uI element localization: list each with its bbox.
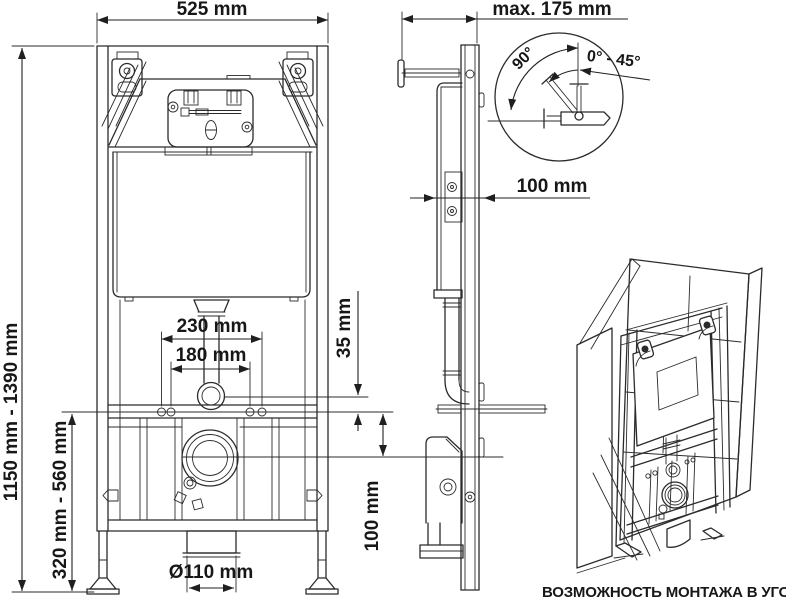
swivel-bracket <box>542 74 610 128</box>
installation-frame-diagram: 90° 0° - 45° <box>0 0 786 599</box>
cistern-tank <box>102 62 323 301</box>
dim-width-525: 525 mm <box>97 0 328 43</box>
dim-lower-320-560: 320 mm - 560 mm <box>50 414 72 591</box>
wall-gap-100-label: 100 mm <box>517 176 588 197</box>
drain-100-label: 100 mm <box>362 481 383 552</box>
frame-struts <box>140 418 279 520</box>
side-view <box>398 45 547 590</box>
side-rail <box>461 45 484 590</box>
corner-mount-caption: ВОЗМОЖНОСТЬ МОНТАЖА В УГОЛ <box>542 584 786 599</box>
diagram-canvas: 90° 0° - 45° <box>0 0 786 599</box>
dim-drain-diameter: Ø110 mm <box>169 556 254 592</box>
dim-offset-35: 35 mm <box>334 291 358 431</box>
side-tank <box>434 83 462 298</box>
drain-assembly <box>103 408 322 557</box>
wall-anchor-rod <box>436 405 547 413</box>
offset-35-label: 35 mm <box>334 298 355 358</box>
drain-diameter-label: Ø110 mm <box>169 562 254 583</box>
angle-range-label: 0° - 45° <box>586 48 641 71</box>
lower-range-label: 320 mm - 560 mm <box>50 421 71 579</box>
fix-180-label: 180 mm <box>176 345 247 366</box>
angle-90-label: 90° <box>509 44 538 73</box>
frame-outline <box>97 46 328 531</box>
side-drain-bend <box>420 437 475 558</box>
rotation-detail: 90° 0° - 45° <box>488 33 650 161</box>
dimensions: 525 mm max. 175 mm 1150 mm - 1390 mm 320… <box>1 0 628 592</box>
corner-illustration: ВОЗМОЖНОСТЬ МОНТАЖА В УГОЛ <box>542 259 786 599</box>
access-panel <box>168 90 253 147</box>
width-525-label: 525 mm <box>177 0 248 20</box>
dim-drain-100: 100 mm <box>362 414 383 551</box>
flush-230-label: 230 mm <box>177 316 248 337</box>
depth-max175-label: max. 175 mm <box>492 0 611 20</box>
height-range-label: 1150 mm - 1390 mm <box>1 323 22 502</box>
dim-height-1150-1390: 1150 mm - 1390 mm <box>1 46 94 592</box>
